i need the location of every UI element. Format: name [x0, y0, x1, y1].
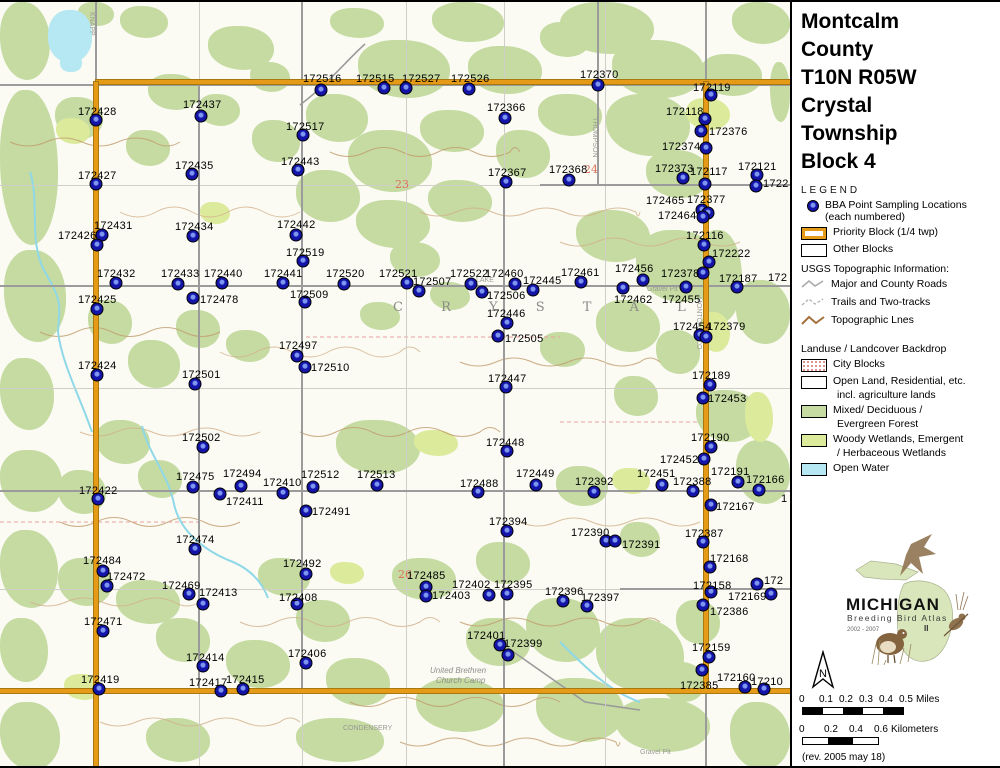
bba-point-label: 1722: [763, 178, 789, 190]
bba-point-dot[interactable]: [695, 125, 708, 138]
forest-patch: [356, 200, 430, 248]
bba-point-label: 172448: [486, 437, 525, 449]
bba-point-label: 172432: [97, 268, 136, 280]
bba-point-label: 172437: [183, 99, 222, 111]
bba-point-label: 172488: [460, 478, 499, 490]
bba-point-label: 172377: [687, 194, 726, 206]
bba-point-label: 172390: [571, 527, 610, 539]
wetlands-line2: / Herbaceous Wetlands: [837, 447, 994, 459]
bba-point-label: 172461: [561, 267, 600, 279]
bba-point-label: 172462: [614, 294, 653, 306]
bba-point-label: 172424: [78, 360, 117, 372]
bba-point-label: 172378: [661, 268, 700, 280]
forest-swatch: [801, 405, 827, 418]
bba-point-label: 172189: [692, 370, 731, 382]
bba-point-label: 172441: [264, 268, 303, 280]
forest-patch: [296, 170, 360, 222]
water-swatch: [801, 463, 827, 476]
bba-point-label: 172413: [199, 587, 238, 599]
bba-point-label: 172440: [204, 268, 243, 280]
miles-scale-tick: 0.3: [859, 694, 873, 705]
bba-point-label: 172434: [175, 221, 214, 233]
bba-point-label: 172169: [728, 591, 767, 603]
bba-point-dot[interactable]: [699, 178, 712, 191]
bba-point-label: 172374: [662, 141, 701, 153]
forest-patch: [416, 678, 504, 732]
bba-point-label: 172116: [686, 230, 724, 242]
forest-patch: [330, 8, 384, 38]
bba-point-label: 172442: [277, 219, 316, 231]
bba-point-label: 172392: [575, 476, 614, 488]
bba-point-label: 172517: [286, 121, 325, 133]
forest-patch: [0, 90, 58, 245]
miles-scale-tick: 0.2: [839, 694, 853, 705]
bba-point-label: 172510: [311, 362, 350, 374]
legend-item-forest: Mixed/ Deciduous /: [801, 404, 994, 418]
bba-point-label: 172422: [79, 485, 118, 497]
forest-patch: [612, 40, 704, 98]
map-text: United Brethren: [430, 666, 486, 675]
bba-point-label: 172506: [487, 290, 526, 302]
bba-point-label: 172452: [660, 454, 699, 466]
topo-line-icon: [801, 314, 825, 329]
bba-point-dot[interactable]: [751, 578, 764, 591]
bba-point-label: 172427: [78, 170, 117, 182]
forest-patch: [736, 280, 790, 344]
bba-point-label: 172419: [81, 674, 120, 686]
map-text: 23: [395, 178, 409, 191]
bba-point-label: 172527: [402, 73, 441, 85]
bba-point-label: 172386: [710, 606, 749, 618]
forest-patch: [428, 180, 492, 222]
bba-point-label: 172391: [622, 539, 661, 551]
km-scale-bar: [802, 737, 879, 745]
bba-point-label: 172414: [186, 652, 225, 664]
forest-patch: [120, 6, 168, 38]
bba-point-dot[interactable]: [197, 598, 210, 611]
bba-point-label: 172191: [711, 466, 750, 478]
bba-point-label: 172494: [223, 468, 262, 480]
bba-point-label: 172485: [407, 570, 446, 582]
legend-item-wetlands: Woody Wetlands, Emergent: [801, 433, 994, 447]
bba-point-label: 172376: [709, 126, 748, 138]
miles-scale-tick: 0.1: [819, 694, 833, 705]
wetland-patch: [745, 392, 773, 442]
bba-point-label: 172415: [226, 674, 265, 686]
bba-point-label: 172117: [690, 166, 728, 178]
bba-point-label: 172449: [516, 468, 555, 480]
bba-point-dot[interactable]: [214, 488, 227, 501]
miles-scale-tick: 0.4: [879, 694, 893, 705]
other-blocks-swatch: [801, 244, 827, 257]
bba-point-label: 172521: [379, 268, 418, 280]
bba-point-label: 172515: [356, 73, 395, 85]
bba-point-label: 172469: [162, 580, 201, 592]
bba-point-label: 172410: [263, 477, 302, 489]
miles-scale-tick: 0.5: [899, 694, 913, 705]
bba-point-label: 172475: [176, 471, 215, 483]
bba-point-label: 172431: [94, 220, 133, 232]
page: C R Y S T A LUnited BrethrenChurch CampG…: [0, 0, 1000, 768]
bba-point-label: 172426: [58, 230, 97, 242]
bba-point-label: 172385: [680, 680, 719, 692]
sidebar: Montcalm County T10N R05W Crystal Townsh…: [790, 2, 1000, 768]
legend-item-priority-block: Priority Block (1/4 twp): [801, 226, 994, 240]
forest-patch: [336, 420, 420, 474]
bba-point-label: 172464: [658, 210, 697, 222]
bba-point-icon: [807, 200, 819, 212]
bba-point-label: 172406: [288, 648, 327, 660]
bba-point-label: 172399: [504, 638, 543, 650]
bba-point-dot[interactable]: [656, 479, 669, 492]
bba-point-label: 172401: [467, 630, 506, 642]
forest-patch: [614, 376, 658, 416]
forest-patch: [0, 530, 58, 608]
forest-patch: [348, 130, 432, 192]
km-scale-tick: 0.2: [824, 724, 838, 735]
legend-item-trails: Trails and Two-tracks: [801, 296, 994, 311]
svg-text:N: N: [819, 668, 827, 680]
bba-point-label: 172447: [488, 373, 527, 385]
bba-point-label: 172402: [452, 579, 491, 591]
bba-point-label: 172446: [487, 308, 526, 320]
bba-point-dot[interactable]: [696, 664, 709, 677]
bba-point-label: 172445: [523, 275, 562, 287]
bba-point-label: 172484: [83, 555, 122, 567]
bba-point-label: 172460: [485, 268, 524, 280]
bba-point-label: 17210: [751, 676, 783, 688]
bba-point-label: 1: [781, 493, 787, 505]
miles-scale-tick: 0: [799, 694, 805, 705]
forest-patch: [126, 130, 170, 166]
bba-point-dot[interactable]: [637, 274, 650, 287]
bba-point-label: 172167: [716, 501, 755, 513]
bba-point-label: 172379: [707, 321, 746, 333]
bba-point-label: 172428: [78, 106, 117, 118]
bba-point-label: 172408: [279, 592, 318, 604]
bba-point-dot[interactable]: [492, 330, 505, 343]
forest-patch: [732, 2, 790, 44]
km-scale-tick: 0: [799, 724, 805, 735]
forest-patch: [730, 702, 790, 768]
road-line: [0, 84, 790, 86]
openland-line2: incl. agriculture lands: [837, 389, 994, 401]
wetland-patch: [330, 562, 364, 584]
bba-point-label: 172497: [279, 340, 318, 352]
bba-point-label: 172388: [673, 476, 712, 488]
legend-item-other-blocks: Other Blocks: [801, 243, 994, 257]
bba-point-label: 172368: [549, 164, 588, 176]
bba-point-dot[interactable]: [420, 590, 433, 603]
bba-point-label: 172455: [662, 294, 701, 306]
bba-point-label: 172507: [413, 276, 452, 288]
forest-patch: [432, 2, 504, 42]
map-canvas[interactable]: C R Y S T A LUnited BrethrenChurch CampG…: [0, 2, 790, 768]
forest-patch: [226, 330, 270, 362]
forest-patch: [146, 718, 210, 762]
forest-patch: [296, 600, 350, 642]
bba-point-dot[interactable]: [315, 84, 328, 97]
grid-line: [605, 2, 606, 768]
map-title: Montcalm County T10N R05W Crystal Townsh…: [801, 8, 994, 176]
bba-point-dot[interactable]: [502, 649, 515, 662]
forest-patch: [0, 358, 54, 430]
legend-item-bba: BBA Point Sampling Locations(each number…: [801, 199, 994, 223]
bba-point-label: 172: [768, 272, 787, 284]
legend-item-water: Open Water: [801, 462, 994, 476]
bba-point-label: 172516: [303, 73, 342, 85]
landuse-heading: Landuse / Landcover Backdrop: [801, 343, 994, 355]
bba-point-label: 172397: [581, 592, 620, 604]
bba-point-label: 172187: [719, 273, 758, 285]
bba-point-dot[interactable]: [700, 142, 713, 155]
bba-point-label: 172465: [646, 195, 685, 207]
forest-patch: [616, 698, 710, 752]
wetland-patch: [414, 430, 458, 456]
map-text: KNAPP: [88, 12, 95, 36]
svg-text:MICHIGAN: MICHIGAN: [846, 595, 940, 614]
bba-point-label: 172513: [357, 469, 396, 481]
forest-patch: [0, 2, 50, 80]
mbba-logo: MICHIGAN Breeding Bird Atlas 2002 - 2007…: [826, 532, 992, 687]
bba-point-label: 172512: [301, 469, 340, 481]
bba-point-label: 172491: [312, 506, 351, 518]
km-scale-tick: 0.4: [849, 724, 863, 735]
bba-point-label: 172456: [615, 263, 654, 275]
forest-patch: [306, 94, 368, 142]
bba-point-label: 172433: [161, 268, 200, 280]
bba-point-dot[interactable]: [750, 180, 763, 193]
bba-point-dot[interactable]: [697, 599, 710, 612]
bba-point-label: 172370: [580, 69, 619, 81]
roads-line-icon: [801, 278, 825, 293]
wetlands-swatch: [801, 434, 827, 447]
bba-point-label: 172453: [708, 393, 747, 405]
bba-point-label: 172526: [451, 73, 490, 85]
forest-patch: [468, 46, 542, 94]
bba-point-label: 172387: [685, 528, 724, 540]
bba-point-label: 172471: [84, 616, 123, 628]
bba-point-label: 172435: [175, 160, 214, 172]
forest-patch: [128, 340, 180, 388]
bba-point-label: 172159: [692, 642, 731, 654]
map-text: C R Y S T A L: [393, 300, 703, 315]
scale-bars: 00.10.20.30.40.5Miles00.20.40.6Kilometer…: [792, 690, 1000, 750]
bba-point-label: 172519: [286, 247, 325, 259]
bba-point-label: 172411: [226, 496, 264, 508]
revision-note: (rev. 2005 may 18): [802, 752, 885, 763]
bba-point-label: 172478: [200, 294, 239, 306]
bba-point-label: 172158: [693, 580, 732, 592]
bba-point-label: 172166: [746, 474, 785, 486]
bba-point-dot[interactable]: [698, 453, 711, 466]
priority-block-line: [96, 80, 790, 84]
forest-patch: [770, 62, 790, 122]
legend-item-openland: Open Land, Residential, etc.: [801, 375, 994, 389]
legend-item-roads: Major and County Roads: [801, 278, 994, 293]
bba-point-label: 172367: [488, 167, 527, 179]
bba-point-label: 172502: [182, 432, 221, 444]
miles-scale-bar: [802, 707, 904, 715]
forest-patch: [96, 420, 150, 464]
bba-point-label: 172501: [182, 369, 221, 381]
bba-point-label: 172373: [655, 163, 694, 175]
legend-heading: LEGEND: [801, 185, 994, 196]
svg-text:II: II: [924, 624, 928, 633]
svg-text:Breeding Bird Atlas: Breeding Bird Atlas: [847, 613, 948, 623]
forest-patch: [536, 678, 624, 742]
bba-point-label: 172366: [487, 102, 526, 114]
grid-line: [406, 2, 407, 768]
bba-point-label: 172443: [281, 156, 320, 168]
bba-point-label: 172472: [107, 571, 146, 583]
bba-point-label: 172118: [666, 106, 704, 118]
forest-patch: [420, 110, 484, 152]
bba-point-dot[interactable]: [300, 505, 313, 518]
bba-point-label: 172492: [283, 558, 322, 570]
bba-point-dot[interactable]: [195, 110, 208, 123]
miles-scale-unit: Miles: [916, 694, 939, 705]
openland-swatch: [801, 376, 827, 389]
svg-text:2002 - 2007: 2002 - 2007: [847, 627, 880, 633]
km-scale-tick: 0.6: [874, 724, 888, 735]
bba-point-label: 172451: [637, 468, 676, 480]
bba-point-dot[interactable]: [187, 292, 200, 305]
km-scale-unit: Kilometers: [891, 724, 938, 735]
forest-patch: [0, 450, 62, 512]
bba-point-label: 172395: [494, 579, 533, 591]
bba-point-label: 172119: [693, 82, 731, 94]
bba-point-dot[interactable]: [299, 361, 312, 374]
forest-patch: [326, 658, 390, 706]
priority-block-line: [0, 689, 790, 693]
bba-point-dot[interactable]: [530, 479, 543, 492]
north-arrow: N: [808, 650, 838, 695]
forest-patch: [250, 62, 290, 92]
bba-point-label: 172522: [450, 268, 489, 280]
bba-point-label: 172121: [738, 161, 777, 173]
map-text: Church Camp: [436, 676, 485, 685]
usgs-heading: USGS Topographic Information:: [801, 263, 994, 275]
bba-point-dot[interactable]: [697, 211, 710, 224]
bba-point-label: 172520: [326, 268, 365, 280]
wetland-patch: [56, 118, 90, 144]
map-text: Gravel Pit: [647, 286, 678, 293]
bba-point-label: 172474: [176, 534, 215, 546]
map-text: CONDENSERY: [343, 725, 392, 732]
bba-point-label: 172425: [78, 294, 117, 306]
trails-line-icon: [801, 296, 825, 311]
forest-patch: [0, 618, 48, 682]
bba-point-dot[interactable]: [617, 282, 630, 295]
bba-point-label: 172394: [489, 516, 528, 528]
bba-point-label: 172190: [691, 432, 730, 444]
legend-item-topolines: Topographic Lnes: [801, 314, 994, 329]
bba-point-dot[interactable]: [609, 535, 622, 548]
city-blocks-swatch: [801, 359, 827, 372]
legend-item-city: City Blocks: [801, 358, 994, 372]
road-line: [597, 2, 599, 185]
bba-point-label: 172: [764, 575, 783, 587]
grid-line: [0, 388, 790, 389]
priority-block-swatch: [801, 227, 827, 240]
forest-line2: Evergreen Forest: [837, 418, 994, 430]
bba-point-dot[interactable]: [680, 281, 693, 294]
forest-patch: [540, 332, 585, 367]
bba-point-label: 172168: [710, 553, 749, 565]
bba-point-dot[interactable]: [307, 481, 320, 494]
bba-point-label: 172396: [545, 586, 584, 598]
bba-point-label: 172403: [432, 590, 471, 602]
bba-point-dot[interactable]: [235, 480, 248, 493]
bba-point-label: 172222: [712, 248, 751, 260]
forest-patch: [4, 250, 66, 342]
map-text: Gravel Pit: [640, 749, 671, 756]
open-water-patch: [60, 54, 82, 72]
bba-point-label: 172417: [189, 677, 228, 689]
bba-point-label: 172160: [717, 672, 756, 684]
road-line: [0, 490, 790, 492]
forest-patch: [0, 702, 60, 768]
bba-point-label: 172509: [290, 289, 329, 301]
map-text: THOMPSON: [591, 117, 598, 157]
bba-point-label: 172505: [505, 333, 544, 345]
